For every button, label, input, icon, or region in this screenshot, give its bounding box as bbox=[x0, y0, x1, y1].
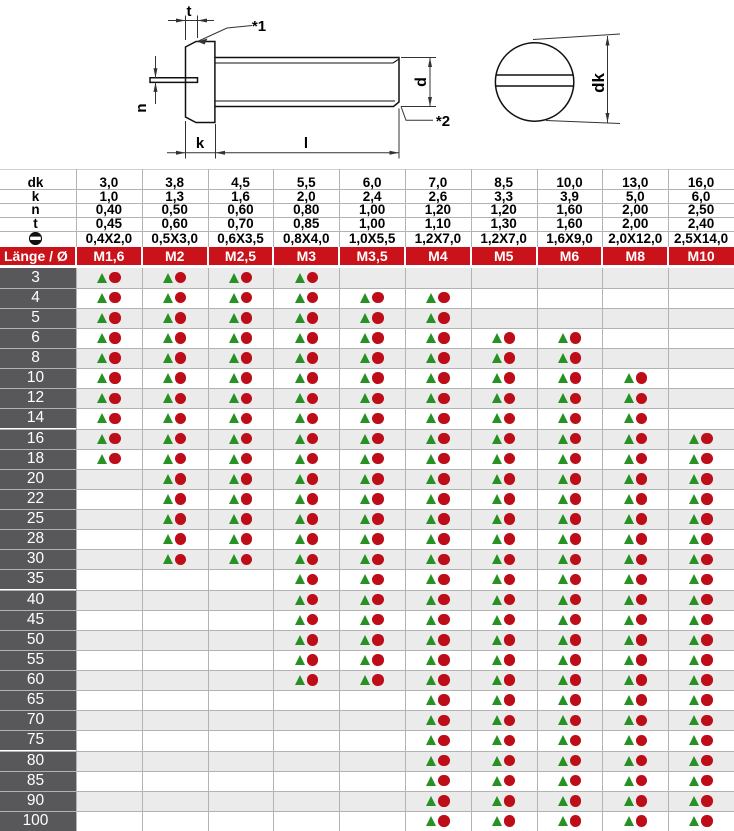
svg-text:d: d bbox=[413, 77, 430, 87]
svg-text:*1: *1 bbox=[252, 18, 266, 35]
svg-text:l: l bbox=[304, 135, 308, 152]
svg-text:k: k bbox=[196, 135, 205, 152]
svg-text:t: t bbox=[187, 3, 192, 20]
svg-text:dk: dk bbox=[589, 73, 608, 93]
svg-text:n: n bbox=[133, 103, 150, 112]
svg-text:*2: *2 bbox=[436, 113, 450, 130]
